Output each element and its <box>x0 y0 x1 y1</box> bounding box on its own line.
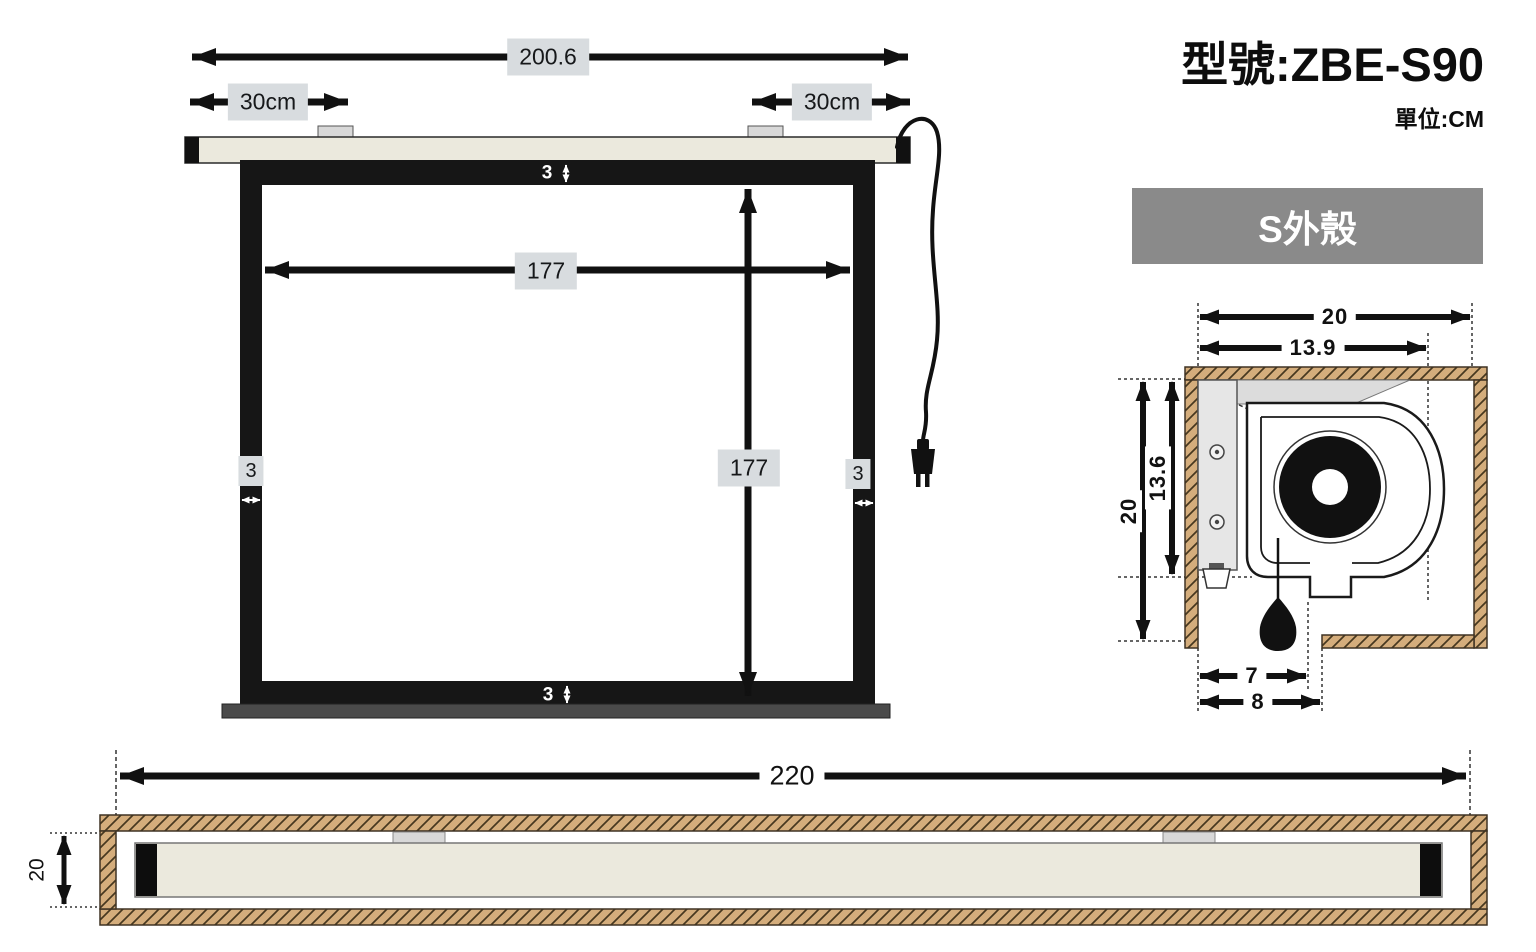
mounting-plate <box>1198 380 1237 588</box>
dim-sec-opening-inner-label: 7 <box>1237 663 1266 689</box>
dim-inner-height-label: 177 <box>718 450 780 487</box>
side-end-cap-right <box>1420 844 1441 896</box>
side-tab-right <box>1163 832 1215 843</box>
niche-wall-right <box>1471 831 1487 909</box>
screen-frame <box>222 160 890 718</box>
foot <box>1203 569 1230 588</box>
niche-wall-bottom <box>100 909 1487 925</box>
dim-side-height-label: 20 <box>26 852 49 887</box>
section-view-art <box>1118 303 1487 714</box>
power-plug <box>911 439 935 487</box>
pull-cord-weight <box>1260 597 1297 651</box>
model-title: 型號:ZBE-S90 <box>1181 26 1484 95</box>
dim-sec-inner-height-label: 13.6 <box>1145 447 1171 510</box>
side-end-cap-left <box>136 844 157 896</box>
dim-sec-outer-height-label: 20 <box>1116 490 1142 532</box>
power-cord <box>897 119 939 487</box>
dim-offset-right-label: 30cm <box>792 84 872 121</box>
mount-bracket-left <box>318 126 353 138</box>
foot-cap <box>1209 563 1224 569</box>
side-height-guides <box>50 833 100 907</box>
side-casing-bar <box>135 832 1442 897</box>
dim-border-left-label: 3 <box>238 456 263 486</box>
shell-banner: S外殼 <box>1132 188 1483 264</box>
niche-wall-left <box>100 831 116 909</box>
wall-bottom-right <box>1322 635 1474 648</box>
bottom-weight-slat <box>222 704 890 718</box>
front-view-art <box>185 57 939 718</box>
wall-top <box>1185 367 1487 380</box>
diagram-canvas: 型號:ZBE-S90 單位:CM S外殼 200.6 30cm 30cm 177… <box>0 0 1536 952</box>
dim-inner-width-label: 177 <box>515 253 577 290</box>
casing-body <box>185 137 910 163</box>
dim-side-length-label: 220 <box>759 761 824 792</box>
dim-offset-left-label: 30cm <box>228 84 308 121</box>
casing-bar <box>185 126 910 163</box>
dim-sec-opening-outer-label: 8 <box>1243 689 1272 715</box>
side-tab-left <box>393 832 445 843</box>
dim-sec-inner-width-label: 13.9 <box>1282 335 1345 361</box>
roller-axle-hole <box>1312 469 1348 505</box>
niche-wall-top <box>100 815 1487 831</box>
wall-left <box>1185 380 1198 648</box>
casing-end-cap-left <box>185 137 199 163</box>
dim-border-bottom-label: 3 <box>543 686 554 705</box>
wall-right <box>1474 380 1487 648</box>
unit-label: 單位:CM <box>1395 100 1484 134</box>
cord-path <box>897 119 939 441</box>
side-casing-body <box>135 843 1442 897</box>
dim-border-right-label: 3 <box>845 459 870 489</box>
dim-total-width-label: 200.6 <box>507 39 589 76</box>
mount-bracket-right <box>748 126 783 138</box>
roller-tube <box>1274 431 1386 543</box>
dim-border-top-label: 3 <box>542 164 553 183</box>
dim-sec-outer-width-label: 20 <box>1314 304 1356 330</box>
